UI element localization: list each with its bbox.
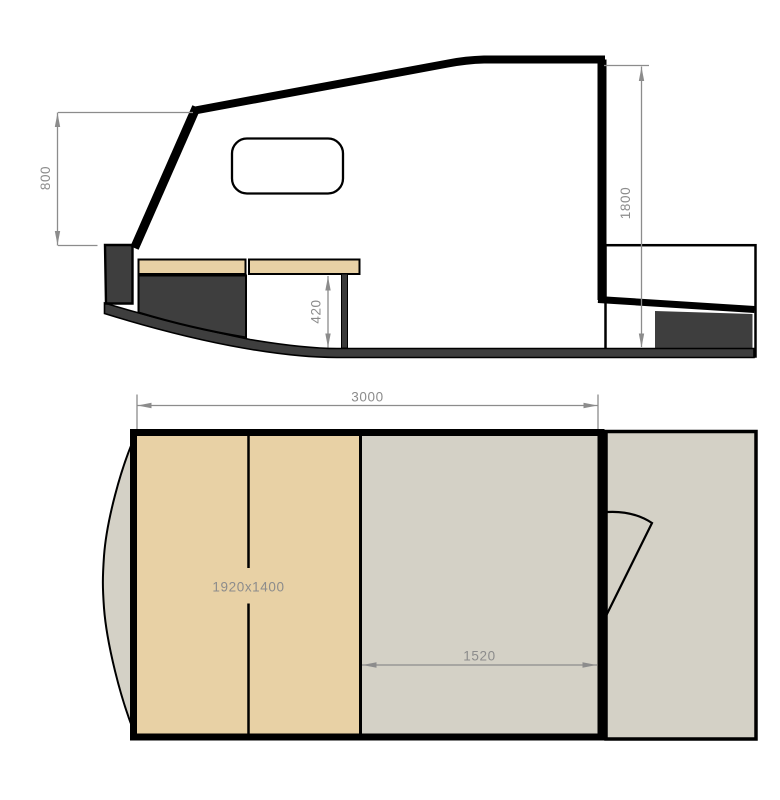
aft-deck-line: [598, 300, 755, 310]
dim-arrow-down-icon: [639, 334, 644, 348]
dim-overall-length: 3000: [137, 390, 598, 430]
roof-line: [195, 60, 605, 111]
dim-berth-height-label: 420: [309, 299, 324, 323]
drawing-canvas: 800 1800 420: [0, 0, 780, 800]
berth-leg: [342, 274, 348, 348]
dim-arrow-up-icon: [639, 67, 644, 81]
dim-cockpit-length-label: 1520: [463, 649, 495, 664]
top-plan-view: 3000 1520 1920x1400: [103, 390, 756, 740]
dim-arrow-up-icon: [55, 113, 60, 127]
dim-arrow-left-icon: [138, 403, 152, 408]
dim-berth-height: 420: [309, 276, 331, 348]
dim-front-height-lines: [58, 113, 194, 246]
windshield-line: [135, 107, 197, 248]
dim-front-height-label: 800: [38, 166, 53, 190]
side-elevation-view: 800 1800 420: [38, 60, 756, 358]
aft-hull-fill: [655, 311, 753, 349]
berth-top-front: [139, 260, 246, 275]
cockpit-deck: [606, 432, 756, 740]
dim-arrow-down-icon: [55, 231, 60, 245]
dim-rear-height-label: 1800: [618, 187, 633, 219]
cabin-window: [232, 139, 343, 194]
dim-arrow-up-icon: [325, 277, 330, 291]
berth-top-rear: [249, 260, 360, 275]
dim-overall-length-label: 3000: [351, 390, 383, 405]
berth-size-label: 1920x1400: [212, 580, 284, 595]
dim-arrow-down-icon: [325, 334, 330, 348]
boat-technical-drawing: 800 1800 420: [0, 0, 780, 800]
cabin-floor: [360, 436, 598, 734]
dim-arrow-right-icon: [584, 403, 598, 408]
bow-block: [105, 245, 133, 304]
